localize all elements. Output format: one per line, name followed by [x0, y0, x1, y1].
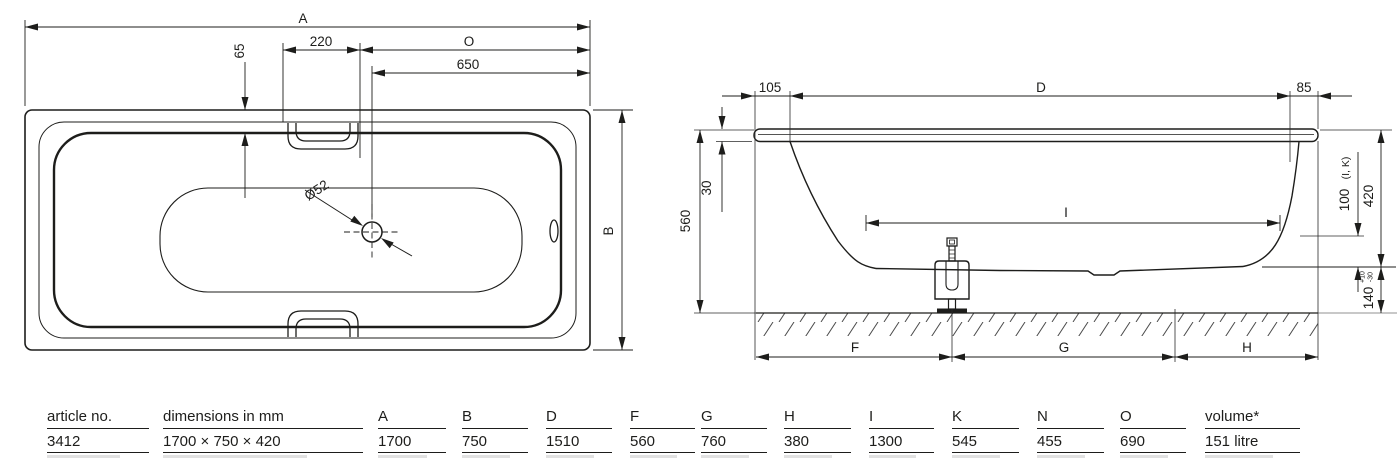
svg-text:560: 560 [678, 210, 693, 233]
col-g: G 760 [701, 409, 767, 453]
col-o: O 690 [1120, 409, 1186, 453]
dim-f-g-h: F G H [756, 340, 1318, 361]
dim-a: A [25, 11, 590, 106]
svg-text:420: 420 [1361, 185, 1376, 208]
col-value: 1510 [546, 429, 612, 453]
dim-650: 650 [372, 57, 590, 217]
svg-text:D: D [1036, 80, 1046, 95]
drain-diameter-label: Ø52 [302, 177, 332, 203]
svg-text:F: F [851, 340, 859, 355]
col-value: 1300 [869, 429, 934, 453]
dim-140: 140 +10 -30 [1360, 267, 1385, 313]
tub-profile [754, 129, 1318, 275]
svg-text:I: I [1064, 205, 1068, 220]
rim-profile [754, 129, 1318, 142]
col-volume: volume* 151 litre [1205, 409, 1300, 453]
col-header: article no. [47, 409, 149, 429]
col-h: H 380 [784, 409, 851, 453]
svg-text:100: 100 [1337, 189, 1352, 212]
col-value: 1700 × 750 × 420 [163, 429, 363, 453]
svg-text:G: G [1059, 340, 1070, 355]
col-k: K 545 [952, 409, 1019, 453]
col-f: F 560 [630, 409, 695, 453]
col-value: 455 [1037, 429, 1104, 453]
svg-text:65: 65 [232, 43, 247, 58]
col-value: 1700 [378, 429, 446, 453]
dim-100: 100 (I, K) [1337, 152, 1362, 292]
dim-105-d-85: 105 D 85 [722, 80, 1352, 100]
side-view-drawing: 105 D 85 560 30 I [678, 80, 1400, 362]
col-value: 690 [1120, 429, 1186, 453]
dim-65: 65 [232, 43, 249, 198]
svg-text:A: A [298, 11, 307, 26]
support-foot [935, 238, 969, 313]
top-view-drawing: Ø52 A 220 O [25, 11, 633, 350]
col-header: D [546, 409, 612, 429]
col-header: A [378, 409, 446, 429]
col-n: N 455 [1037, 409, 1104, 453]
col-d: D 1510 [546, 409, 612, 453]
col-value: 545 [952, 429, 1019, 453]
svg-text:+10: +10 [1360, 271, 1367, 283]
drain: Ø52 [302, 177, 412, 260]
dim-420: 420 [1361, 130, 1385, 267]
bathtub-spec-sheet: Ø52 A 220 O [0, 0, 1400, 459]
col-value: 380 [784, 429, 851, 453]
svg-text:O: O [464, 34, 475, 49]
svg-text:220: 220 [310, 34, 333, 49]
col-value: 3412 [47, 429, 149, 453]
svg-text:650: 650 [457, 57, 480, 72]
col-header: O [1120, 409, 1186, 429]
dim-30: 30 [699, 107, 726, 212]
dim-i: I [866, 205, 1280, 231]
col-header: I [869, 409, 934, 429]
col-value: 151 litre [1205, 429, 1300, 453]
grip-handle-top [288, 123, 358, 149]
col-b: B 750 [462, 409, 528, 453]
grip-handle-bottom [288, 311, 358, 337]
col-value: 560 [630, 429, 695, 453]
svg-text:140: 140 [1361, 287, 1376, 310]
col-article-no: article no. 3412 [47, 409, 149, 453]
svg-text:85: 85 [1296, 80, 1311, 95]
bathtub-outline [25, 110, 590, 350]
col-header: K [952, 409, 1019, 429]
col-header: volume* [1205, 409, 1300, 429]
dim-o: O [360, 34, 590, 54]
col-value: 760 [701, 429, 767, 453]
col-a: A 1700 [378, 409, 446, 453]
svg-text:30: 30 [699, 180, 714, 195]
col-i: I 1300 [869, 409, 934, 453]
svg-text:H: H [1242, 340, 1252, 355]
floor-hatch [756, 313, 1397, 336]
overflow-slot [550, 220, 558, 242]
col-header: H [784, 409, 851, 429]
col-header: G [701, 409, 767, 429]
col-value: 750 [462, 429, 528, 453]
col-header: F [630, 409, 695, 429]
col-header: dimensions in mm [163, 409, 363, 429]
spec-table: article no. 3412 dimensions in mm 1700 ×… [0, 392, 1400, 459]
svg-text:B: B [601, 226, 616, 235]
dim-b: B [593, 110, 633, 350]
dim-560: 560 [678, 130, 704, 313]
svg-text:(I, K): (I, K) [1340, 157, 1352, 180]
svg-text:-30: -30 [1368, 272, 1375, 282]
col-dimensions: dimensions in mm 1700 × 750 × 420 [163, 409, 363, 453]
col-header: N [1037, 409, 1104, 429]
svg-text:105: 105 [759, 80, 782, 95]
col-header: B [462, 409, 528, 429]
dim-220: 220 [283, 34, 360, 158]
technical-drawing: Ø52 A 220 O [0, 0, 1400, 392]
